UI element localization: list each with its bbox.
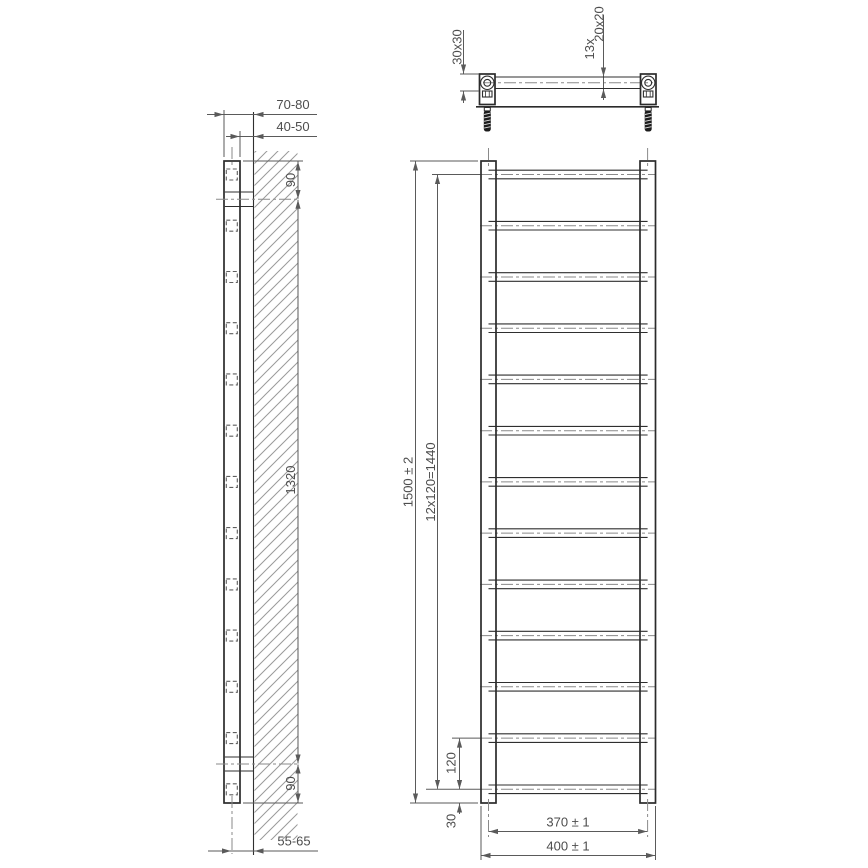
rungs — [480, 170, 656, 793]
dim-label-wall-to-back: 40-50 — [276, 119, 309, 134]
dim-label-bottom-rung-offset: 30 — [444, 814, 459, 828]
dim-label-bottom-bracket-offset: 90 — [283, 776, 298, 790]
left-mount-stud — [484, 108, 491, 132]
dim-axis-spacing: 370 ± 1 — [489, 815, 647, 832]
dim-label-overall-height: 1500 ± 2 — [401, 457, 416, 508]
dim-rung-pitch: 120 — [444, 738, 480, 789]
technical-drawing-page: 70-80 40-50 90 1320 90 — [0, 0, 868, 868]
dim-overall-height: 1500 ± 2 — [401, 161, 478, 803]
wall-hatching — [255, 151, 298, 840]
dim-label-top-bracket-offset: 90 — [283, 173, 298, 187]
side-view: 70-80 40-50 90 1320 90 — [207, 97, 318, 855]
front-view: 1500 ± 2 12x120=1440 120 30 370 ± 1 — [401, 148, 656, 860]
dim-rung-profile: 13x 20x20 — [582, 6, 607, 100]
dim-rung-pitch-total: 12x120=1440 — [423, 175, 480, 790]
right-mount-stud — [645, 108, 652, 132]
dim-label-rung-profile: 20x20 — [592, 6, 607, 41]
dim-label-overall-width: 400 ± 1 — [546, 839, 589, 854]
dim-label-rung-pitch: 120 — [444, 752, 459, 774]
right-mount-bushing — [642, 76, 655, 97]
dim-label-bracket-spacing: 1320 — [283, 466, 298, 495]
left-mount-bushing — [481, 76, 494, 97]
technical-drawing-canvas: 70-80 40-50 90 1320 90 — [0, 0, 868, 868]
dim-label-rung-pitch-total: 12x120=1440 — [423, 442, 438, 521]
hidden-rung-sections — [226, 169, 237, 795]
dim-label-post-profile: 30x30 — [450, 29, 465, 64]
dim-post-profile: 30x30 — [450, 29, 479, 103]
dim-label-axis-spacing: 370 ± 1 — [546, 815, 589, 830]
top-view: 30x30 13x 20x20 — [450, 6, 659, 131]
dim-label-wall-to-axis: 55-65 — [277, 834, 310, 849]
dim-label-wall-to-front: 70-80 — [276, 97, 309, 112]
